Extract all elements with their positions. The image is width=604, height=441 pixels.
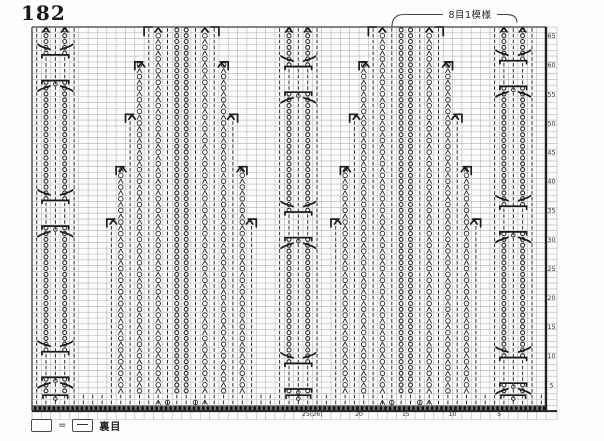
row-number: 10 [547, 352, 555, 360]
row-number: 40 [547, 178, 555, 186]
row-number: 20 [547, 294, 555, 302]
legend-equals: = [58, 420, 66, 431]
row-number: 25 [547, 265, 555, 273]
row-number: 50 [547, 119, 555, 127]
scanned-pattern-page: 182 8目1模様 656055504540353025201510551015… [0, 0, 604, 441]
repeat-bracket [392, 15, 517, 27]
chart-canvas: 6560555045403530252015105510152025(26) [0, 0, 604, 441]
row-number: 60 [547, 61, 555, 69]
legend-blank-square-icon [31, 419, 52, 432]
stitch-count-number: 15 [402, 411, 410, 418]
row-number: 55 [547, 90, 555, 98]
symbol-legend: = 裏目 [31, 418, 121, 433]
stitch-count-number: 5 [497, 411, 501, 418]
stitch-count-number: 20 [355, 411, 363, 418]
row-number: 45 [547, 149, 555, 157]
row-number: 5 [549, 381, 553, 389]
row-number: 30 [547, 236, 555, 244]
row-number: 35 [547, 207, 555, 215]
legend-purl-label: 裏目 [99, 418, 121, 433]
stitch-count-number: 10 [449, 411, 457, 418]
row-number: 65 [547, 32, 555, 40]
stitch-count-number: 25(26) [302, 411, 323, 418]
row-number: 15 [547, 323, 555, 331]
legend-purl-symbol-icon [72, 419, 93, 432]
